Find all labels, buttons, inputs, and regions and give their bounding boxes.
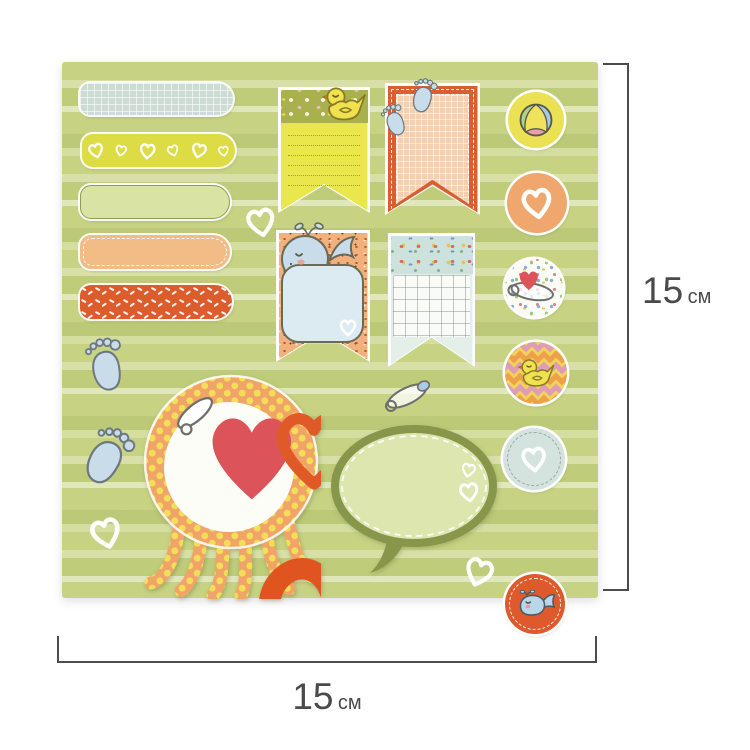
painted-heart-icon: [241, 203, 280, 240]
height-unit: см: [688, 286, 712, 308]
heart-icon: [165, 142, 182, 159]
grid-strip-sticker: [80, 83, 233, 115]
sprinkles-strip-sticker: [80, 285, 232, 319]
duck-chevron-sticker: [505, 342, 567, 404]
beach-ball-icon: [518, 102, 554, 138]
stitch-border: [83, 238, 227, 266]
heart-sticker: [507, 173, 567, 233]
footprint-icon: [78, 332, 132, 396]
grid-note-banner: [388, 233, 475, 367]
sprinkles-pattern: [80, 285, 232, 319]
width-dimension-label: 15 см: [57, 676, 597, 718]
plain-strip-sticker: [80, 185, 230, 219]
width-value: 15: [292, 676, 333, 717]
height-value: 15: [642, 270, 683, 311]
heart-icon: [188, 140, 210, 161]
height-dimension-line: [603, 63, 629, 591]
sticker-sheet: [62, 62, 598, 598]
painted-heart-icon: [338, 318, 358, 337]
painted-heart-icon: [518, 444, 551, 475]
heart-icon: [137, 141, 158, 161]
stitched-strip-sticker: [80, 235, 230, 269]
octopus-frame-sticker: [141, 367, 321, 599]
writing-lines: [288, 135, 360, 195]
width-dimension-line: [57, 636, 597, 663]
width-unit: см: [338, 692, 362, 714]
banner-dotted-cap: [391, 236, 473, 274]
footprint-icon: [73, 417, 141, 493]
dashed-heart-sticker: [503, 428, 565, 490]
height-dimension-label: 15 см: [642, 270, 711, 312]
product-photo: { "annotations": { "right_dimension": {"…: [0, 0, 750, 750]
painted-heart-icon: [84, 512, 128, 554]
beach-ball-sticker: [508, 92, 564, 148]
heart-icon: [113, 143, 129, 158]
painted-heart-icon: [517, 184, 557, 223]
grid-paper: [393, 275, 470, 337]
safety-pin-icon: [377, 374, 436, 419]
hearts-strip-sticker: [82, 134, 235, 167]
duck-icon: [320, 86, 368, 122]
painted-heart-icon: [456, 479, 483, 504]
whale-icon: [515, 590, 555, 618]
duck-icon: [516, 358, 556, 388]
safety-pin-icon: [507, 266, 561, 310]
heart-icon: [85, 140, 107, 161]
whale-round-sticker: [505, 574, 565, 634]
heart-icon: [216, 144, 231, 158]
painted-heart-icon: [459, 460, 479, 479]
safety-pin-sticker: [505, 259, 563, 317]
